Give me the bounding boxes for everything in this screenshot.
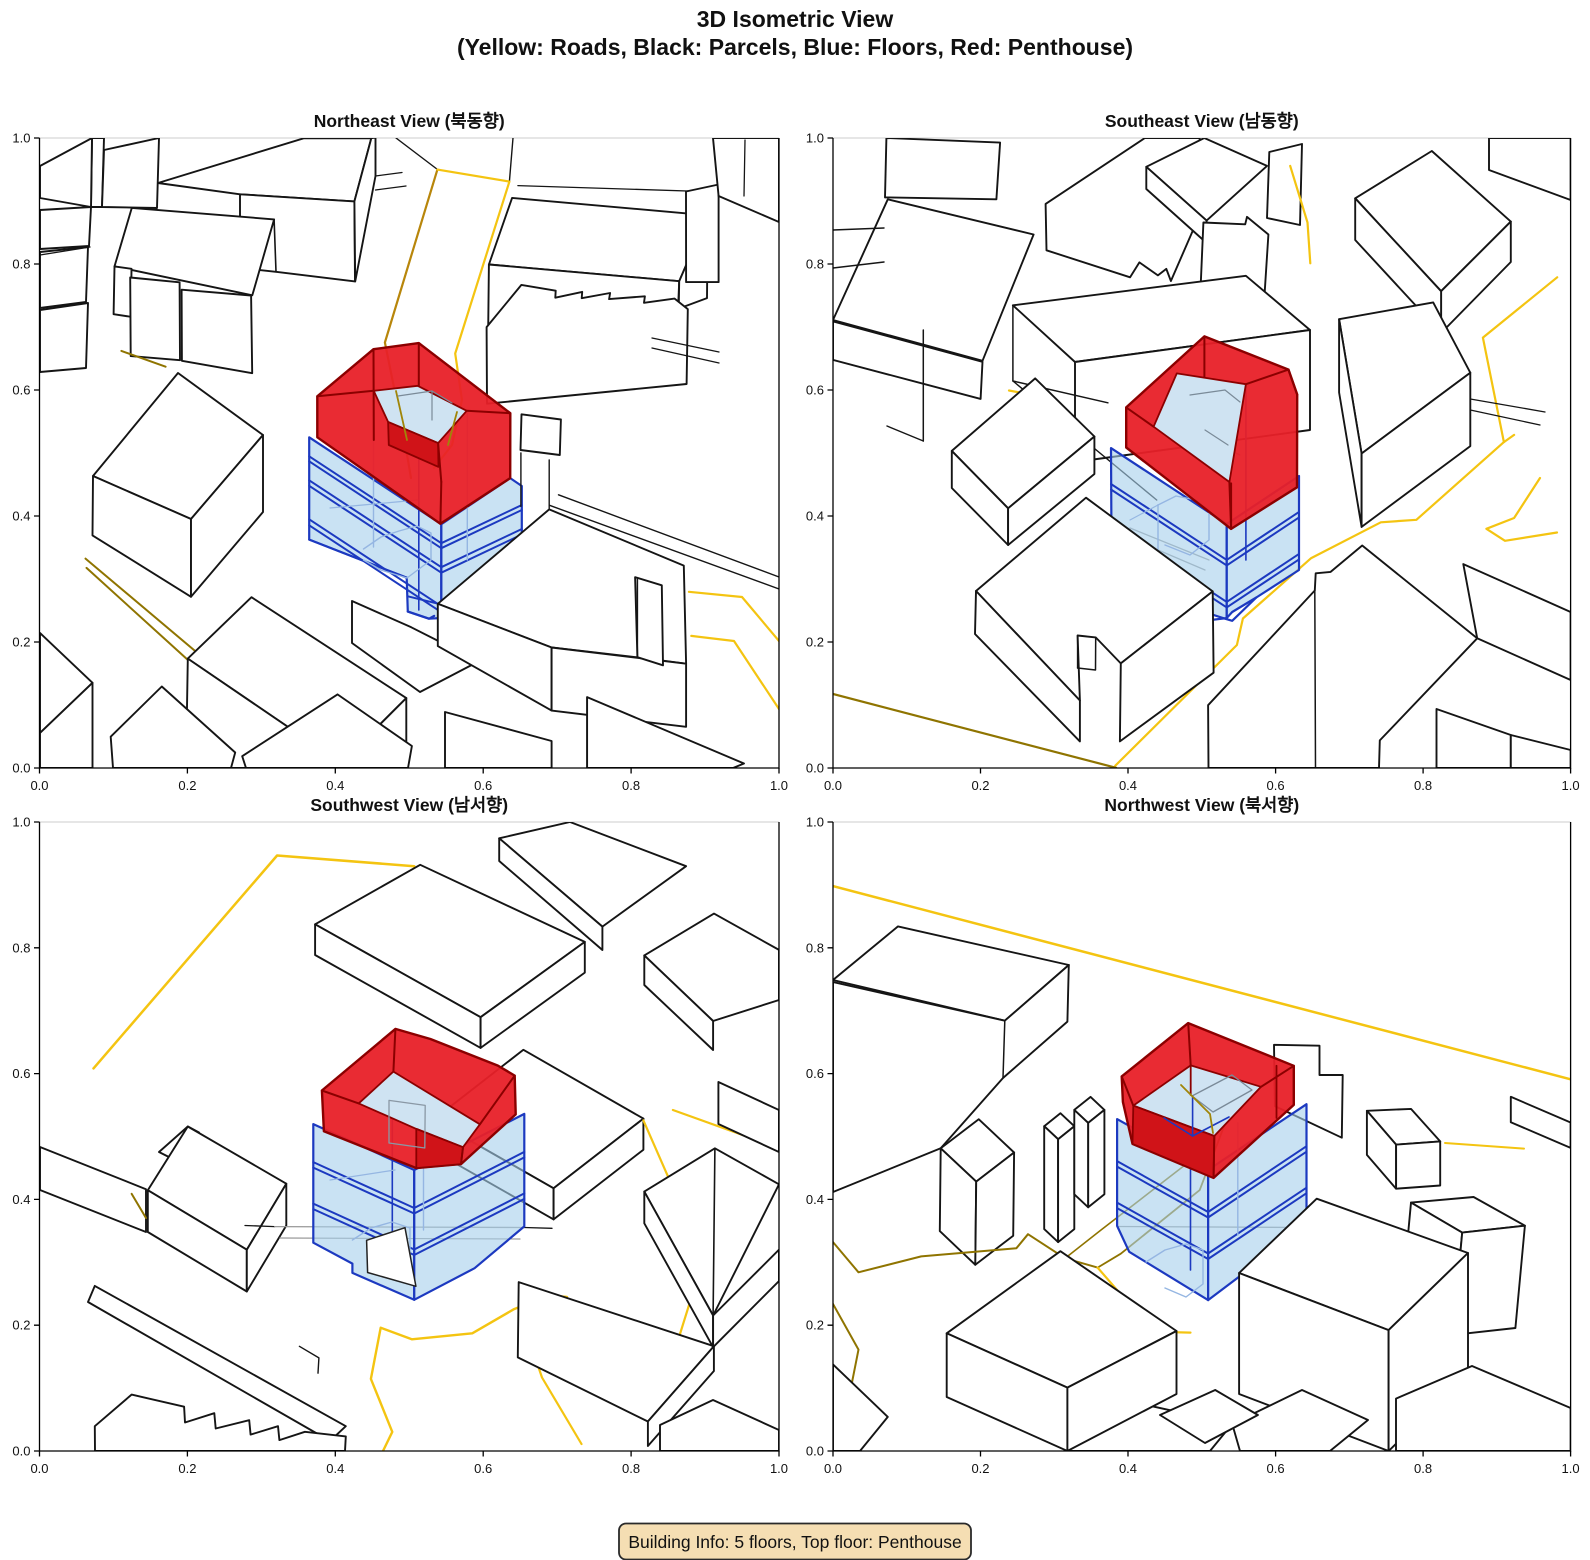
- svg-text:0.6: 0.6: [806, 383, 824, 398]
- svg-text:1.0: 1.0: [770, 778, 788, 793]
- svg-text:0.8: 0.8: [12, 257, 30, 272]
- svg-text:0.0: 0.0: [824, 778, 842, 793]
- svg-text:0.6: 0.6: [806, 1066, 824, 1081]
- svg-text:Building Info: 5 floors, Top f: Building Info: 5 floors, Top floor: Pent…: [628, 1532, 961, 1552]
- svg-text:0.4: 0.4: [806, 1192, 824, 1207]
- svg-text:0.0: 0.0: [30, 1461, 48, 1476]
- svg-text:(Yellow: Roads, Black: Parcels: (Yellow: Roads, Black: Parcels, Blue: Fl…: [457, 34, 1133, 60]
- svg-text:0.2: 0.2: [806, 635, 824, 650]
- svg-text:0.2: 0.2: [178, 778, 196, 793]
- svg-text:0.6: 0.6: [1267, 1461, 1285, 1476]
- svg-text:0.0: 0.0: [12, 1444, 30, 1459]
- svg-text:0.0: 0.0: [824, 1461, 842, 1476]
- svg-text:0.2: 0.2: [178, 1461, 196, 1476]
- svg-text:0.2: 0.2: [12, 1318, 30, 1333]
- svg-text:0.6: 0.6: [1267, 778, 1285, 793]
- svg-text:0.2: 0.2: [971, 778, 989, 793]
- svg-text:Northeast View (북동향): Northeast View (북동향): [314, 111, 505, 131]
- svg-text:1.0: 1.0: [806, 815, 824, 830]
- svg-text:1.0: 1.0: [770, 1461, 788, 1476]
- svg-text:0.0: 0.0: [30, 778, 48, 793]
- svg-text:1.0: 1.0: [1562, 1461, 1580, 1476]
- svg-text:0.8: 0.8: [806, 257, 824, 272]
- svg-text:0.8: 0.8: [1414, 1461, 1432, 1476]
- svg-text:0.0: 0.0: [12, 761, 30, 776]
- svg-text:0.2: 0.2: [806, 1318, 824, 1333]
- svg-text:Southwest View (남서향): Southwest View (남서향): [310, 795, 508, 815]
- svg-text:0.0: 0.0: [806, 1444, 824, 1459]
- svg-text:Northwest View (북서향): Northwest View (북서향): [1104, 795, 1299, 815]
- svg-text:0.6: 0.6: [12, 1066, 30, 1081]
- svg-text:0.0: 0.0: [806, 761, 824, 776]
- svg-text:0.6: 0.6: [474, 1461, 492, 1476]
- svg-text:0.4: 0.4: [326, 778, 344, 793]
- svg-text:0.4: 0.4: [12, 1192, 30, 1207]
- svg-text:0.4: 0.4: [1119, 778, 1137, 793]
- svg-text:0.4: 0.4: [12, 509, 30, 524]
- svg-text:1.0: 1.0: [1562, 778, 1580, 793]
- svg-text:1.0: 1.0: [806, 131, 824, 146]
- svg-text:0.8: 0.8: [622, 778, 640, 793]
- svg-text:0.4: 0.4: [326, 1461, 344, 1476]
- svg-text:0.8: 0.8: [622, 1461, 640, 1476]
- svg-text:0.2: 0.2: [12, 635, 30, 650]
- svg-text:1.0: 1.0: [12, 815, 30, 830]
- svg-text:0.4: 0.4: [806, 509, 824, 524]
- svg-text:0.4: 0.4: [1119, 1461, 1137, 1476]
- svg-text:0.8: 0.8: [1414, 778, 1432, 793]
- svg-text:0.8: 0.8: [12, 940, 30, 955]
- svg-text:0.6: 0.6: [12, 383, 30, 398]
- svg-text:0.8: 0.8: [806, 940, 824, 955]
- svg-text:3D Isometric View: 3D Isometric View: [697, 6, 894, 32]
- svg-text:0.6: 0.6: [474, 778, 492, 793]
- svg-text:1.0: 1.0: [12, 131, 30, 146]
- svg-text:Southeast View (남동향): Southeast View (남동향): [1105, 111, 1299, 131]
- svg-text:0.2: 0.2: [971, 1461, 989, 1476]
